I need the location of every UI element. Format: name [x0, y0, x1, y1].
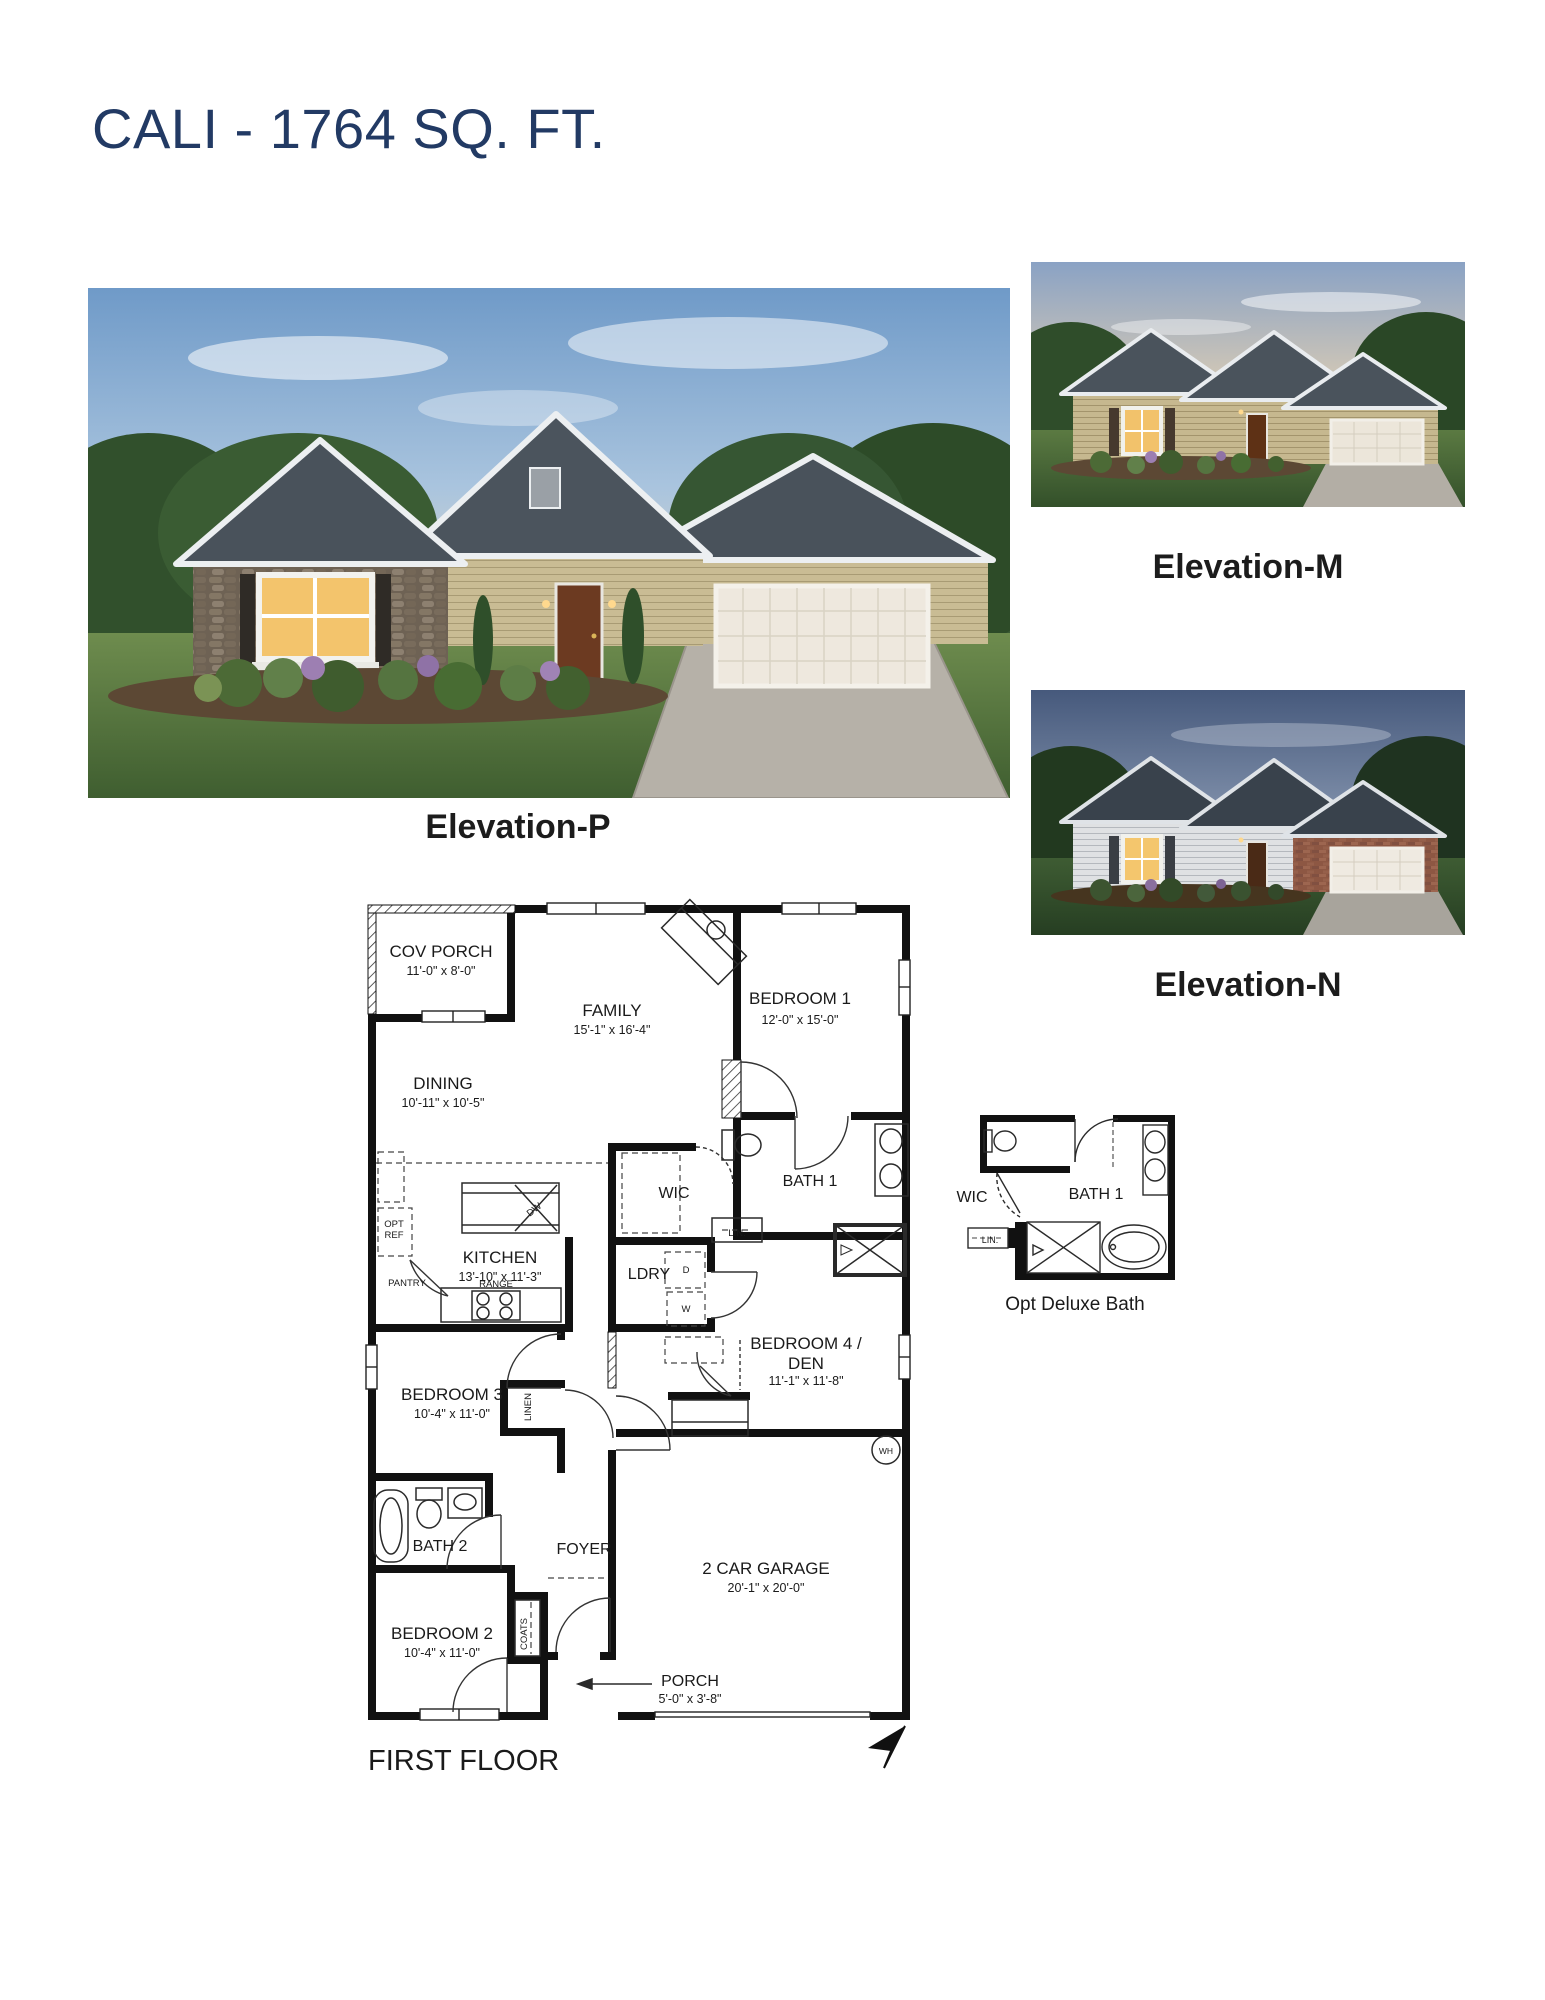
room-label-dining: DINING — [413, 1074, 473, 1093]
room-label-foyer: FOYER — [556, 1541, 611, 1558]
room-label-bedroom4-line1: BEDROOM 4 / — [750, 1334, 862, 1353]
page-title: CALI - 1764 SQ. FT. — [92, 96, 606, 161]
elevation-p-caption: Elevation-P — [88, 808, 948, 847]
room-label-cov-porch: COV PORCH — [390, 942, 493, 961]
floor-plan-drawing: COV PORCH 11'-0" x 8'-0" FAMILY 15'-1" x… — [340, 860, 1240, 1820]
label-opt-ref-2: REF — [385, 1230, 404, 1241]
room-dims-porch: 5'-0" x 3'-8" — [659, 1692, 722, 1706]
elevation-m-photo — [1031, 262, 1465, 507]
label-washer: W — [682, 1304, 691, 1315]
front-window — [240, 572, 391, 670]
flyer-page: CALI - 1764 SQ. FT. — [0, 0, 1545, 2000]
room-dims-family: 15'-1" x 16'-4" — [574, 1023, 651, 1037]
room-dims-bedroom1: 12'-0" x 15'-0" — [762, 1013, 839, 1027]
elevation-p-photo — [88, 288, 1010, 798]
plan-labels: COV PORCH 11'-0" x 8'-0" FAMILY 15'-1" x… — [368, 942, 893, 1777]
elevation-p-illustration — [88, 288, 1010, 798]
inset-label-wic: WIC — [956, 1189, 987, 1206]
label-opt-ref-1: OPT — [384, 1219, 404, 1230]
elevation-m-illustration — [1031, 262, 1465, 507]
label-linen: LINEN — [523, 1393, 534, 1421]
inset-label-lin: LIN. — [982, 1235, 999, 1245]
room-label-garage: 2 CAR GARAGE — [702, 1559, 830, 1578]
label-pantry: PANTRY — [388, 1278, 426, 1289]
room-label-ldry: LDRY — [628, 1266, 671, 1283]
room-label-bedroom1: BEDROOM 1 — [749, 989, 851, 1008]
room-dims-cov-porch: 11'-0" x 8'-0" — [406, 964, 475, 978]
opt-deluxe-bath-inset: WIC BATH 1 LIN. Opt Deluxe Bath — [956, 1115, 1175, 1315]
room-dims-bedroom2: 10'-4" x 11'-0" — [404, 1646, 480, 1660]
label-range: RANGE — [479, 1279, 513, 1290]
room-label-bath2: BATH 2 — [413, 1538, 468, 1555]
label-coats: COATS — [519, 1618, 530, 1650]
room-dims-dining: 10'-11" x 10'-5" — [402, 1096, 485, 1110]
garage-door — [716, 586, 928, 686]
room-label-family: FAMILY — [582, 1001, 641, 1020]
label-lin: LIN. — [728, 1228, 745, 1239]
room-label-bedroom4-line2: DEN — [788, 1354, 824, 1373]
room-dims-bedroom4: 11'-1" x 11'-8" — [768, 1374, 843, 1388]
room-label-bedroom2: BEDROOM 2 — [391, 1624, 493, 1643]
elevation-m-caption: Elevation-M — [1031, 548, 1465, 587]
inset-label-bath1: BATH 1 — [1069, 1186, 1124, 1203]
label-water-heater: WH — [879, 1446, 893, 1456]
first-floor-label: FIRST FLOOR — [368, 1745, 559, 1777]
room-dims-garage: 20'-1" x 20'-0" — [728, 1581, 805, 1595]
room-label-bedroom3: BEDROOM 3 — [401, 1385, 503, 1404]
north-arrow-icon — [868, 1726, 905, 1768]
room-label-bath1: BATH 1 — [783, 1173, 838, 1190]
room-label-wic: WIC — [658, 1185, 689, 1202]
label-dryer: D — [683, 1265, 690, 1276]
room-label-kitchen: KITCHEN — [463, 1248, 538, 1267]
inset-caption: Opt Deluxe Bath — [1005, 1294, 1144, 1315]
floor-plan: COV PORCH 11'-0" x 8'-0" FAMILY 15'-1" x… — [340, 860, 1240, 1820]
room-dims-bedroom3: 10'-4" x 11'-0" — [414, 1407, 490, 1421]
room-label-porch: PORCH — [661, 1673, 719, 1690]
